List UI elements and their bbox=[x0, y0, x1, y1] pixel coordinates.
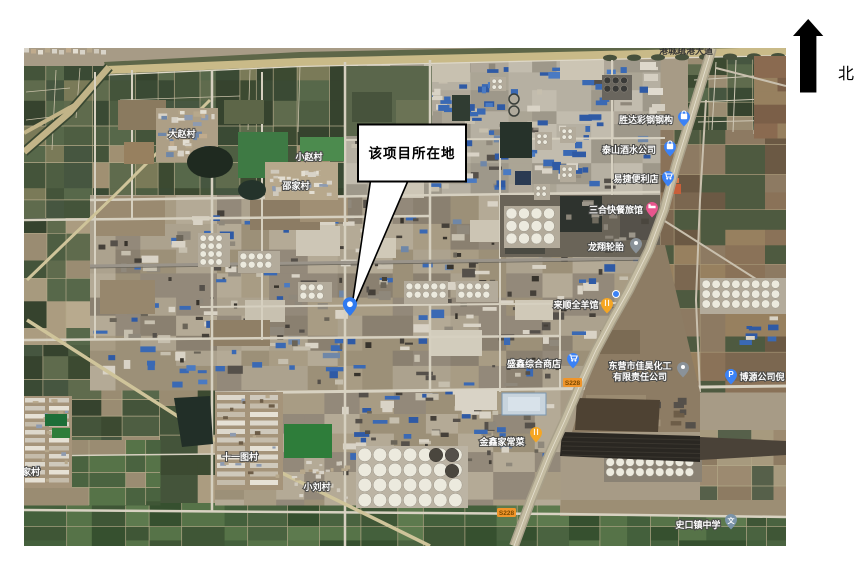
svg-text:小刘村: 小刘村 bbox=[302, 481, 330, 492]
svg-text:该项目所在地: 该项目所在地 bbox=[369, 145, 456, 161]
svg-text:家村: 家村 bbox=[22, 466, 40, 477]
svg-text:北: 北 bbox=[838, 65, 854, 83]
svg-text:史口镇中学: 史口镇中学 bbox=[675, 519, 720, 530]
svg-text:金鑫家常菜: 金鑫家常菜 bbox=[478, 436, 525, 447]
svg-text:P: P bbox=[728, 370, 734, 379]
svg-text:龙翔轮胎: 龙翔轮胎 bbox=[587, 241, 624, 252]
svg-text:S228: S228 bbox=[565, 380, 581, 387]
svg-text:东营市佳昊化工: 东营市佳昊化工 bbox=[608, 360, 671, 371]
svg-text:十一图村: 十一图村 bbox=[222, 451, 258, 462]
svg-text:S228: S228 bbox=[499, 510, 515, 517]
svg-text:胜达彩钢钢构: 胜达彩钢钢构 bbox=[618, 114, 673, 125]
svg-text:来顺全羊馆: 来顺全羊馆 bbox=[552, 299, 598, 310]
svg-text:有限责任公司: 有限责任公司 bbox=[613, 371, 667, 382]
svg-text:泰山酒水公司: 泰山酒水公司 bbox=[601, 144, 656, 155]
svg-text:文: 文 bbox=[728, 516, 736, 525]
svg-text:邵家村: 邵家村 bbox=[281, 180, 309, 191]
svg-text:小赵村: 小赵村 bbox=[294, 151, 322, 162]
svg-text:博源公司倪: 博源公司倪 bbox=[739, 371, 784, 382]
svg-text:三合快餐旅馆: 三合快餐旅馆 bbox=[589, 204, 643, 215]
svg-text:易捷便利店: 易捷便利店 bbox=[613, 173, 658, 184]
svg-text:大赵村: 大赵村 bbox=[168, 128, 195, 139]
svg-text:盛鑫综合商店: 盛鑫综合商店 bbox=[507, 358, 561, 369]
